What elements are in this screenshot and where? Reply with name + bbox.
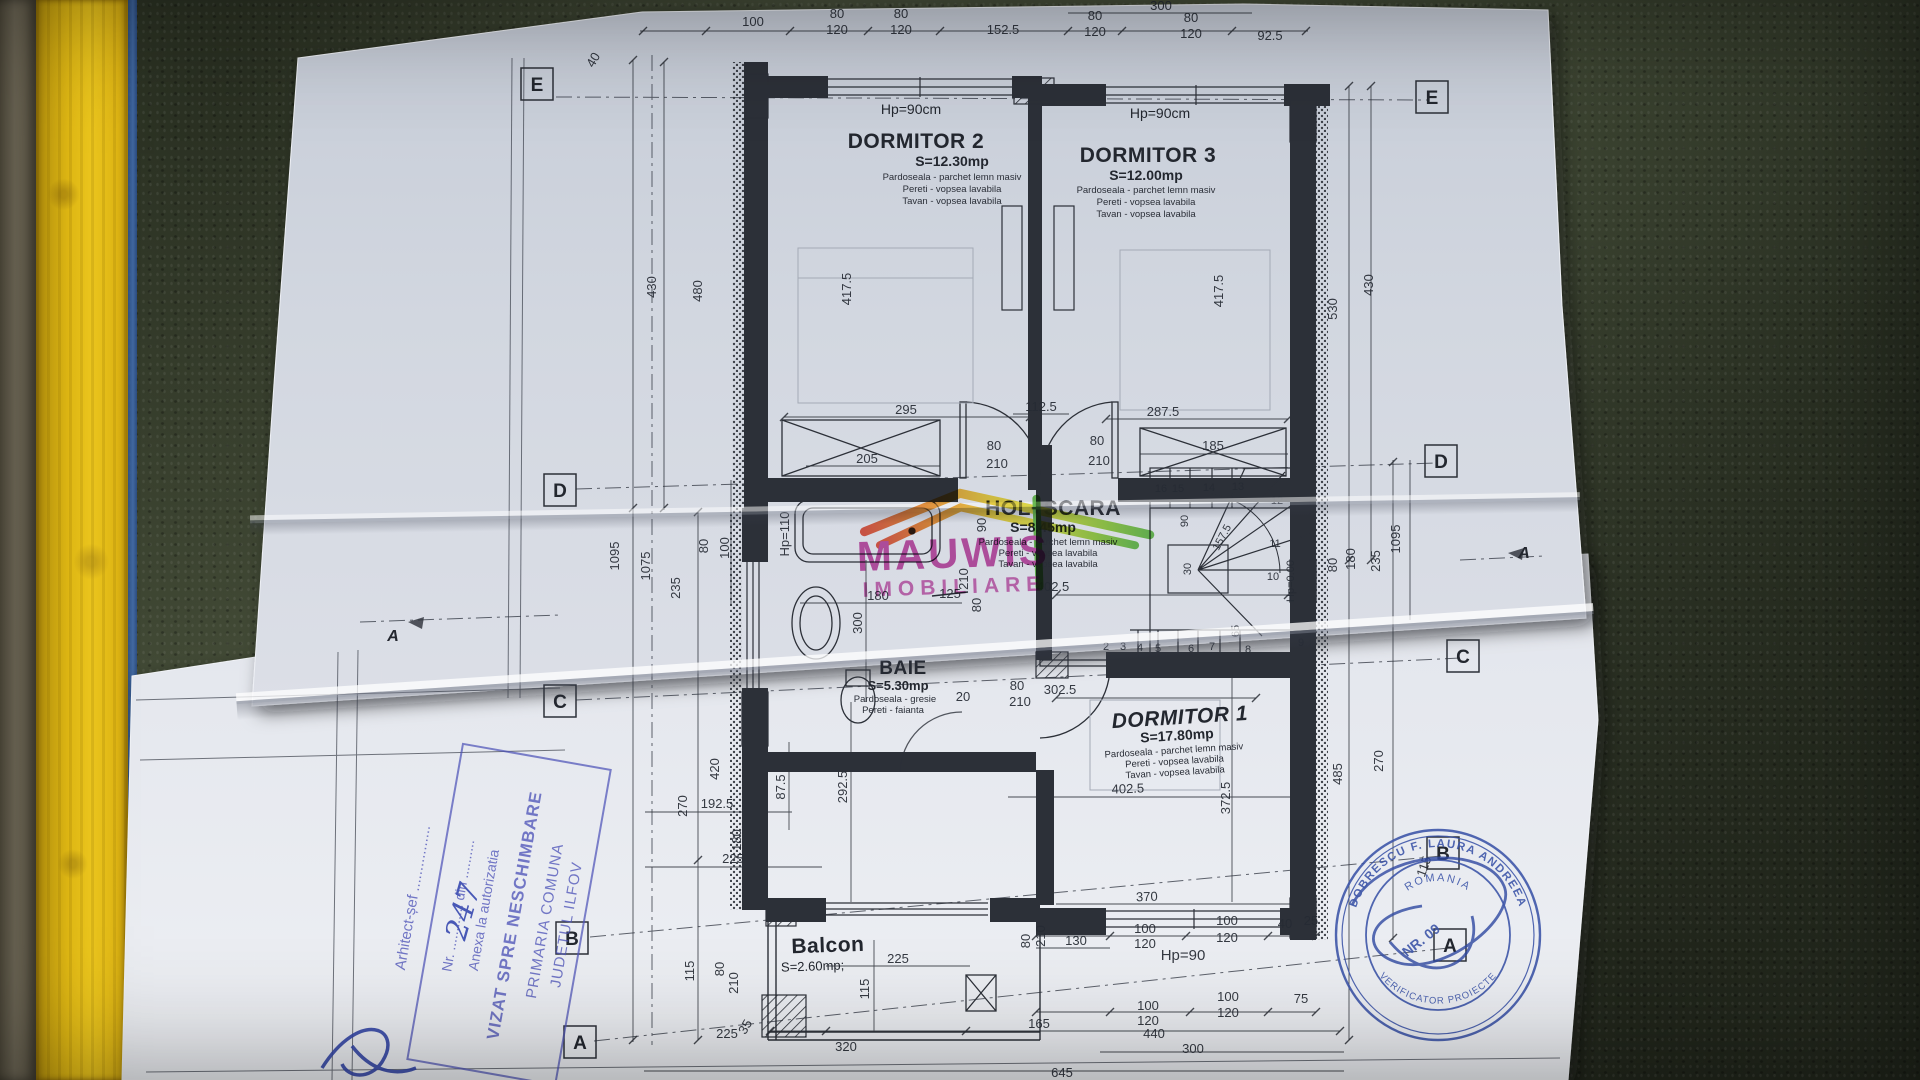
dimension-label: 1095 xyxy=(607,542,622,571)
dimension-label: 80 xyxy=(1010,678,1024,693)
dimension-label: 270 xyxy=(1371,750,1386,772)
dimension-label: 480 xyxy=(690,280,705,302)
dimension-label: 115 xyxy=(682,961,697,982)
dimension-label: 80 xyxy=(1090,433,1104,448)
dimension-label: 152.5 xyxy=(987,22,1020,37)
photo-of-floor-plan: 1008012080120152.5801203008012092.540430… xyxy=(0,0,1920,1080)
dimension-label: 10 xyxy=(1267,571,1279,583)
dimension-label: 100 xyxy=(742,14,764,29)
dimension-label: 112.5 xyxy=(1025,399,1057,414)
dimension-label: 80 xyxy=(894,6,908,21)
dimension-label: 300 xyxy=(1150,0,1172,13)
dimension-label: 530 xyxy=(1325,298,1340,320)
dimension-label: 372.5 xyxy=(1218,782,1233,815)
dimension-label: 180 xyxy=(1343,548,1358,570)
dimension-label: 485 xyxy=(1330,763,1345,785)
dimension-label: 120 xyxy=(826,22,848,37)
dimension-label: 80 xyxy=(1184,10,1198,25)
window-height-label-d3: Hp=90cm xyxy=(1130,105,1190,121)
dimension-label: 40 xyxy=(1278,916,1292,931)
dimension-label: 225 xyxy=(716,1026,738,1041)
dimension-label: 205 xyxy=(856,451,878,466)
dimension-label: 210 xyxy=(726,972,741,994)
section-marker-letter: A xyxy=(386,628,399,645)
svg-text:S=2.60mp;: S=2.60mp; xyxy=(781,957,845,974)
rust-speckles xyxy=(340,370,420,420)
dimension-label: 210 xyxy=(1033,925,1048,947)
dimension-label: 80 xyxy=(830,6,844,21)
dimension-label: 30 xyxy=(1182,563,1194,575)
svg-text:Pardoseala - gresie: Pardoseala - gresie xyxy=(854,694,936,705)
dimension-label: 13 xyxy=(1232,481,1244,493)
dimension-label: 87.5 xyxy=(773,774,788,799)
svg-text:Balcon: Balcon xyxy=(791,933,865,959)
dimension-label: 92.5 xyxy=(1257,28,1282,43)
dimension-label: 80 xyxy=(1088,8,1102,23)
dimension-label: 225 xyxy=(722,851,744,866)
dimension-label: 80 xyxy=(969,598,984,612)
dimension-label: 180 xyxy=(729,829,744,851)
dimension-label: 300 xyxy=(1182,1041,1204,1056)
dimension-label: Hp=90 xyxy=(1161,947,1206,964)
grid-axis-letter: E xyxy=(531,75,544,96)
dimension-label: 302.5 xyxy=(1044,682,1077,697)
dimension-label: 235 xyxy=(668,577,683,599)
dimension-label: 192.5 xyxy=(701,796,734,811)
dimension-label: 320 xyxy=(835,1039,857,1054)
dimension-label: 25 xyxy=(1304,913,1318,928)
dimension-label: 225 xyxy=(887,951,909,966)
dimension-label: 210 xyxy=(1088,453,1110,468)
dimension-label: 270 xyxy=(675,795,690,817)
dimension-label: 75 xyxy=(1294,991,1308,1006)
dimension-label: 210 xyxy=(986,456,1008,471)
dimension-label: 420 xyxy=(707,758,722,780)
svg-text:DORMITOR 2: DORMITOR 2 xyxy=(848,130,984,153)
dimension-label: 120 xyxy=(1180,26,1202,41)
dimension-label: 115 xyxy=(857,979,872,1000)
dimension-label: 645 xyxy=(1051,1065,1073,1080)
grid-axis-letter: D xyxy=(553,481,567,502)
svg-text:S=5.30mp: S=5.30mp xyxy=(867,678,928,693)
dimension-label: 287.5 xyxy=(1147,404,1180,419)
svg-text:Pardoseala - parchet lemn masi: Pardoseala - parchet lemn masiv xyxy=(1077,185,1216,196)
dimension-label: 80 xyxy=(1325,558,1340,572)
dimension-label: 15 xyxy=(1172,483,1184,495)
svg-text:S=12.00mp: S=12.00mp xyxy=(1109,167,1183,183)
dimension-label: 120 xyxy=(1134,936,1156,951)
dimension-label: 130 xyxy=(1065,933,1087,948)
dimension-label: 120 xyxy=(1217,1005,1239,1020)
dimension-label: Hp=0.00 xyxy=(1285,560,1297,602)
svg-text:S=12.30mp: S=12.30mp xyxy=(915,153,989,169)
dimension-label: 440 xyxy=(1143,1026,1165,1041)
dimension-label: 165 xyxy=(1028,1016,1050,1031)
dimension-label: 20 xyxy=(956,689,970,704)
floor-plan-drawing: 1008012080120152.5801203008012092.540430… xyxy=(0,0,1920,1080)
svg-text:Tavan - vopsea lavabila: Tavan - vopsea lavabila xyxy=(1096,209,1196,220)
dimension-label: 235 xyxy=(1368,550,1383,572)
dimension-label: 80 xyxy=(987,438,1001,453)
dimension-label: 14 xyxy=(1203,482,1215,494)
watermark-line1: MAUWIS xyxy=(856,526,1051,580)
dimension-label: 100 xyxy=(1137,998,1159,1013)
svg-text:Pardoseala - parchet lemn masi: Pardoseala - parchet lemn masiv xyxy=(883,172,1022,183)
dimension-label: 185 xyxy=(1202,438,1224,453)
dimension-label: 120 xyxy=(890,22,912,37)
dimension-label: 100 xyxy=(1216,913,1238,928)
dimension-label: 100 xyxy=(717,537,732,559)
dimension-label: 417.5 xyxy=(1211,275,1226,308)
dimension-label: 100 xyxy=(1217,989,1239,1004)
svg-text:DORMITOR 3: DORMITOR 3 xyxy=(1080,144,1216,167)
grid-axis-letter: A xyxy=(573,1033,587,1054)
dimension-label: 120 xyxy=(1084,24,1106,39)
dimension-label: 430 xyxy=(644,276,659,298)
svg-text:Tavan - vopsea lavabila: Tavan - vopsea lavabila xyxy=(902,196,1002,207)
dimension-label: 430 xyxy=(1361,274,1376,296)
dimension-label: 16 xyxy=(1155,483,1167,495)
dimension-label: 370 xyxy=(1136,889,1158,905)
dimension-label: 120 xyxy=(1216,930,1238,945)
dimension-label: 11 xyxy=(1269,538,1280,550)
svg-text:Pereti - vopsea lavabila: Pereti - vopsea lavabila xyxy=(903,184,1002,195)
dimension-label: 292.5 xyxy=(835,771,850,804)
dimension-label: 300 xyxy=(850,612,865,634)
section-marker-letter: A xyxy=(1517,545,1530,562)
dimension-label: 1075 xyxy=(638,552,653,581)
grid-axis-letter: C xyxy=(1456,647,1470,668)
dimension-label: 80 xyxy=(1018,934,1033,948)
svg-text:Pereti - vopsea lavabila: Pereti - vopsea lavabila xyxy=(1097,197,1196,208)
svg-text:Pereti - faianta: Pereti - faianta xyxy=(862,705,924,716)
grid-axis-letter: D xyxy=(1434,452,1448,473)
dimension-label: 100 xyxy=(1134,921,1156,936)
dimension-label: 295 xyxy=(895,402,917,417)
grid-axis-letter: E xyxy=(1426,88,1439,109)
dimension-label: 417.5 xyxy=(839,273,854,306)
window-height-label-d2: Hp=90cm xyxy=(881,101,941,117)
dimension-label: 1095 xyxy=(1388,525,1403,554)
dimension-label: 402.5 xyxy=(1111,780,1144,796)
dimension-label: 80 xyxy=(696,539,711,553)
dimension-label: 210 xyxy=(1009,694,1031,709)
dimension-label: 80 xyxy=(712,962,727,976)
